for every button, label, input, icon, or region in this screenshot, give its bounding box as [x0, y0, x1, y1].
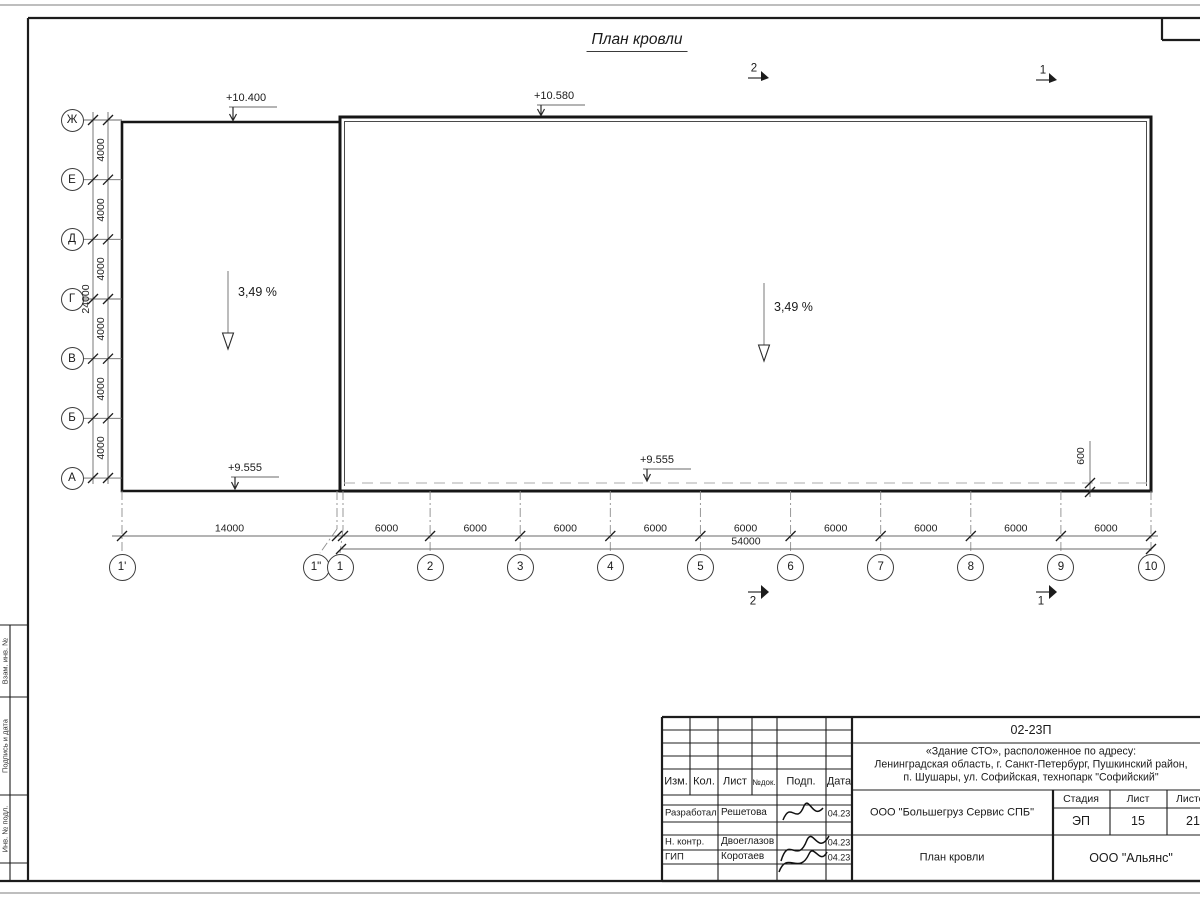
tb-listov-header: Листов — [1176, 794, 1200, 805]
h-span-dim-label: 6000 — [554, 524, 577, 535]
slope-arrow-right — [759, 283, 770, 361]
corner-stamp-box — [1162, 18, 1200, 40]
row-axis-bubble: Ж — [61, 109, 84, 132]
col-axis-bubble: 1" — [303, 554, 330, 581]
section-label-top-2: 2 — [751, 63, 757, 75]
titleblock-code: 02-23П — [1011, 724, 1052, 737]
col-axis-bubble: 3 — [507, 554, 534, 581]
h-span-dim-label: 6000 — [1004, 524, 1027, 535]
tb-role-gip: ГИП — [665, 852, 684, 862]
side-label-vzam: Взам. инв. № — [1, 638, 9, 684]
col-axis-bubble: 2 — [417, 554, 444, 581]
col-axis-bubble: 6 — [777, 554, 804, 581]
tb-role-nkontr: Н. контр. — [665, 837, 704, 847]
tb-name-dvoeglazov: Двоеглазов — [721, 837, 774, 847]
titleblock-address-line2: Ленинградская область, г. Санкт-Петербур… — [874, 760, 1187, 771]
col-axis-leader — [320, 529, 337, 553]
tb-col-kol: Кол. — [693, 777, 715, 788]
col-axis-bubble: 8 — [957, 554, 984, 581]
drawing-title: План кровли — [587, 32, 688, 52]
v-span-dim-label: 4000 — [95, 138, 106, 161]
row-axis-bubble: А — [61, 467, 84, 490]
v-span-dim-label: 4000 — [95, 317, 106, 340]
elevation-label-bottom-right: +9.555 — [640, 455, 674, 466]
h-span-dim-label: 6000 — [1094, 524, 1117, 535]
tb-col-ndok: №док. — [752, 779, 775, 787]
row-axis-bubble: Д — [61, 228, 84, 251]
v-span-dim-label: 4000 — [95, 257, 106, 280]
elevation-mark-bottom-right — [643, 469, 691, 481]
right-building-parapet-line — [345, 122, 1147, 487]
h-span-dim-label: 6000 — [914, 524, 937, 535]
section-label-bottom-2: 2 — [750, 596, 756, 608]
h-span-dim-label: 6000 — [734, 524, 757, 535]
v-total-dim-label: 24000 — [81, 284, 92, 313]
signature-1 — [783, 803, 823, 820]
h-span-dim-label: 6000 — [644, 524, 667, 535]
side-label-podpis: Подпись и дата — [1, 719, 9, 773]
tb-stage-value: ЭП — [1072, 815, 1090, 828]
left-building-outline — [122, 122, 340, 491]
parapet-dim-label: 600 — [1076, 447, 1087, 465]
tb-org: ООО "Альянс" — [1089, 852, 1173, 865]
col-axis-bubble: 7 — [867, 554, 894, 581]
elevation-label-top-right: +10.580 — [534, 91, 574, 102]
slope-label-right: 3,49 % — [774, 301, 813, 314]
titleblock-address-line3: п. Шушары, ул. Софийская, технопарк "Соф… — [903, 773, 1158, 784]
tb-sheet-title: План кровли — [920, 853, 985, 864]
section-label-bottom-1: 1 — [1038, 596, 1044, 608]
tb-list-value: 15 — [1131, 815, 1145, 828]
tb-role-razrabotal: Разработал — [665, 808, 717, 818]
h-span-dim-label: 6000 — [463, 524, 486, 535]
tb-date-3: 04.23 — [828, 854, 851, 863]
elevation-label-bottom-left: +9.555 — [228, 463, 262, 474]
col-axis-bubble: 9 — [1047, 554, 1074, 581]
tb-date-2: 04.23 — [828, 839, 851, 848]
h-first-dim-label: 14000 — [215, 524, 244, 535]
v-span-dim-label: 4000 — [95, 377, 106, 400]
drawing-sheet: План кровли +10.400 +10.580 +9.555 +9.55… — [0, 0, 1200, 900]
section-label-top-1: 1 — [1040, 65, 1046, 77]
h-span-dim-label: 6000 — [375, 524, 398, 535]
col-axis-bubble: 4 — [597, 554, 624, 581]
col-axis-bubble: 1' — [109, 554, 136, 581]
tb-date-1: 04.23 — [828, 810, 851, 819]
tb-stage-header: Стадия — [1063, 794, 1099, 805]
v-span-dim-label: 4000 — [95, 436, 106, 459]
tb-col-izm: Изм. — [664, 777, 688, 788]
tb-col-list: Лист — [723, 777, 747, 788]
right-building-outline — [340, 117, 1151, 491]
tb-list-header: Лист — [1127, 794, 1150, 805]
tb-col-podp: Подп. — [786, 777, 815, 788]
row-axis-bubble: Б — [61, 407, 84, 430]
tb-name-korotaev: Коротаев — [721, 852, 764, 862]
v-span-dim-label: 4000 — [95, 198, 106, 221]
tb-listov-value: 21 — [1186, 815, 1200, 828]
col-axis-bubble: 10 — [1138, 554, 1165, 581]
elevation-label-top-left: +10.400 — [226, 93, 266, 104]
signature-2 — [779, 836, 829, 872]
elevation-mark-top-left — [229, 107, 277, 121]
tb-name-reshetova: Решетова — [721, 808, 767, 818]
slope-label-left: 3,49 % — [238, 286, 277, 299]
row-axis-bubble: Е — [61, 168, 84, 191]
h-total-dim-label: 54000 — [731, 537, 760, 548]
elevation-mark-bottom-left — [231, 477, 279, 489]
col-axis-bubble: 5 — [687, 554, 714, 581]
elevation-mark-top-right — [537, 105, 585, 116]
row-axis-bubble: В — [61, 347, 84, 370]
h-span-dim-label: 6000 — [824, 524, 847, 535]
side-label-inv: Инв. № подл. — [1, 806, 9, 853]
tb-company: ООО "Большегруз Сервис СПБ" — [870, 808, 1034, 819]
tb-col-data: Дата — [827, 777, 851, 788]
col-axis-bubble: 1 — [327, 554, 354, 581]
slope-arrow-left — [223, 271, 234, 349]
titleblock-address-line1: «Здание СТО», расположенное по адресу: — [926, 747, 1136, 758]
